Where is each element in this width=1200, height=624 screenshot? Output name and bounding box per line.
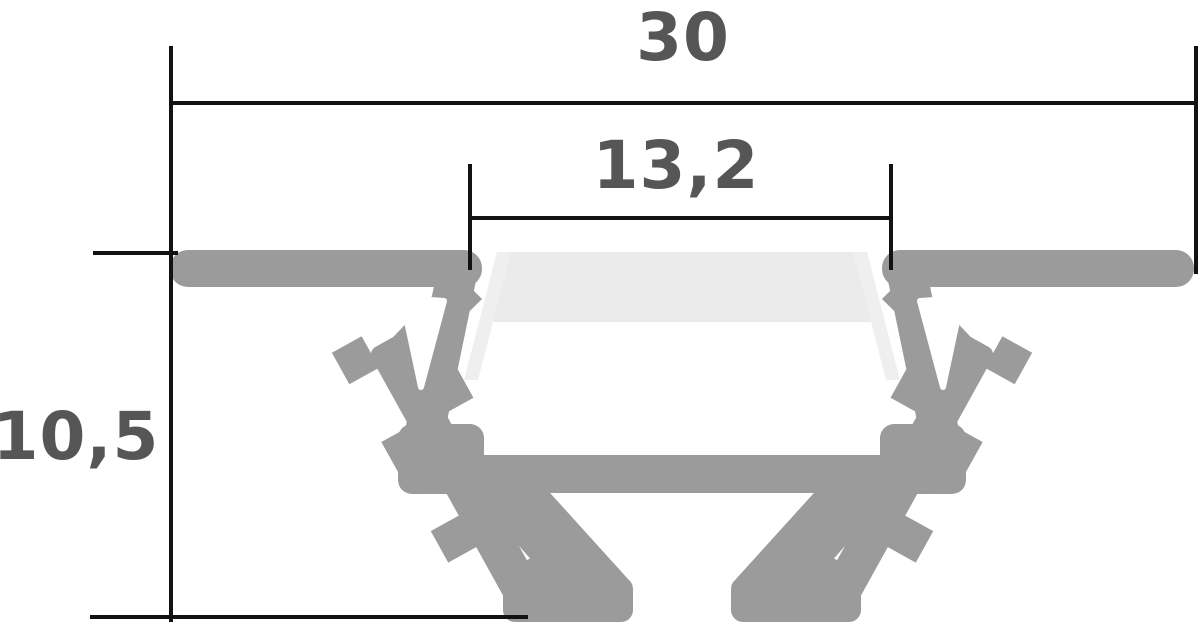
diffuser-cover	[483, 252, 881, 322]
overall-width-label: 30	[636, 0, 730, 76]
drawing-canvas: 30 13,2 10,5	[0, 0, 1200, 624]
profile-cross-section-diagram: 30 13,2 10,5	[0, 0, 1200, 624]
dimension-labels: 30 13,2 10,5	[0, 0, 759, 475]
opening-width-label: 13,2	[593, 127, 760, 204]
overall-height-label: 10,5	[0, 398, 159, 475]
diffuser-top-band	[483, 252, 881, 322]
serration-tooth	[332, 336, 379, 384]
channel-bottom-plate	[430, 455, 934, 493]
